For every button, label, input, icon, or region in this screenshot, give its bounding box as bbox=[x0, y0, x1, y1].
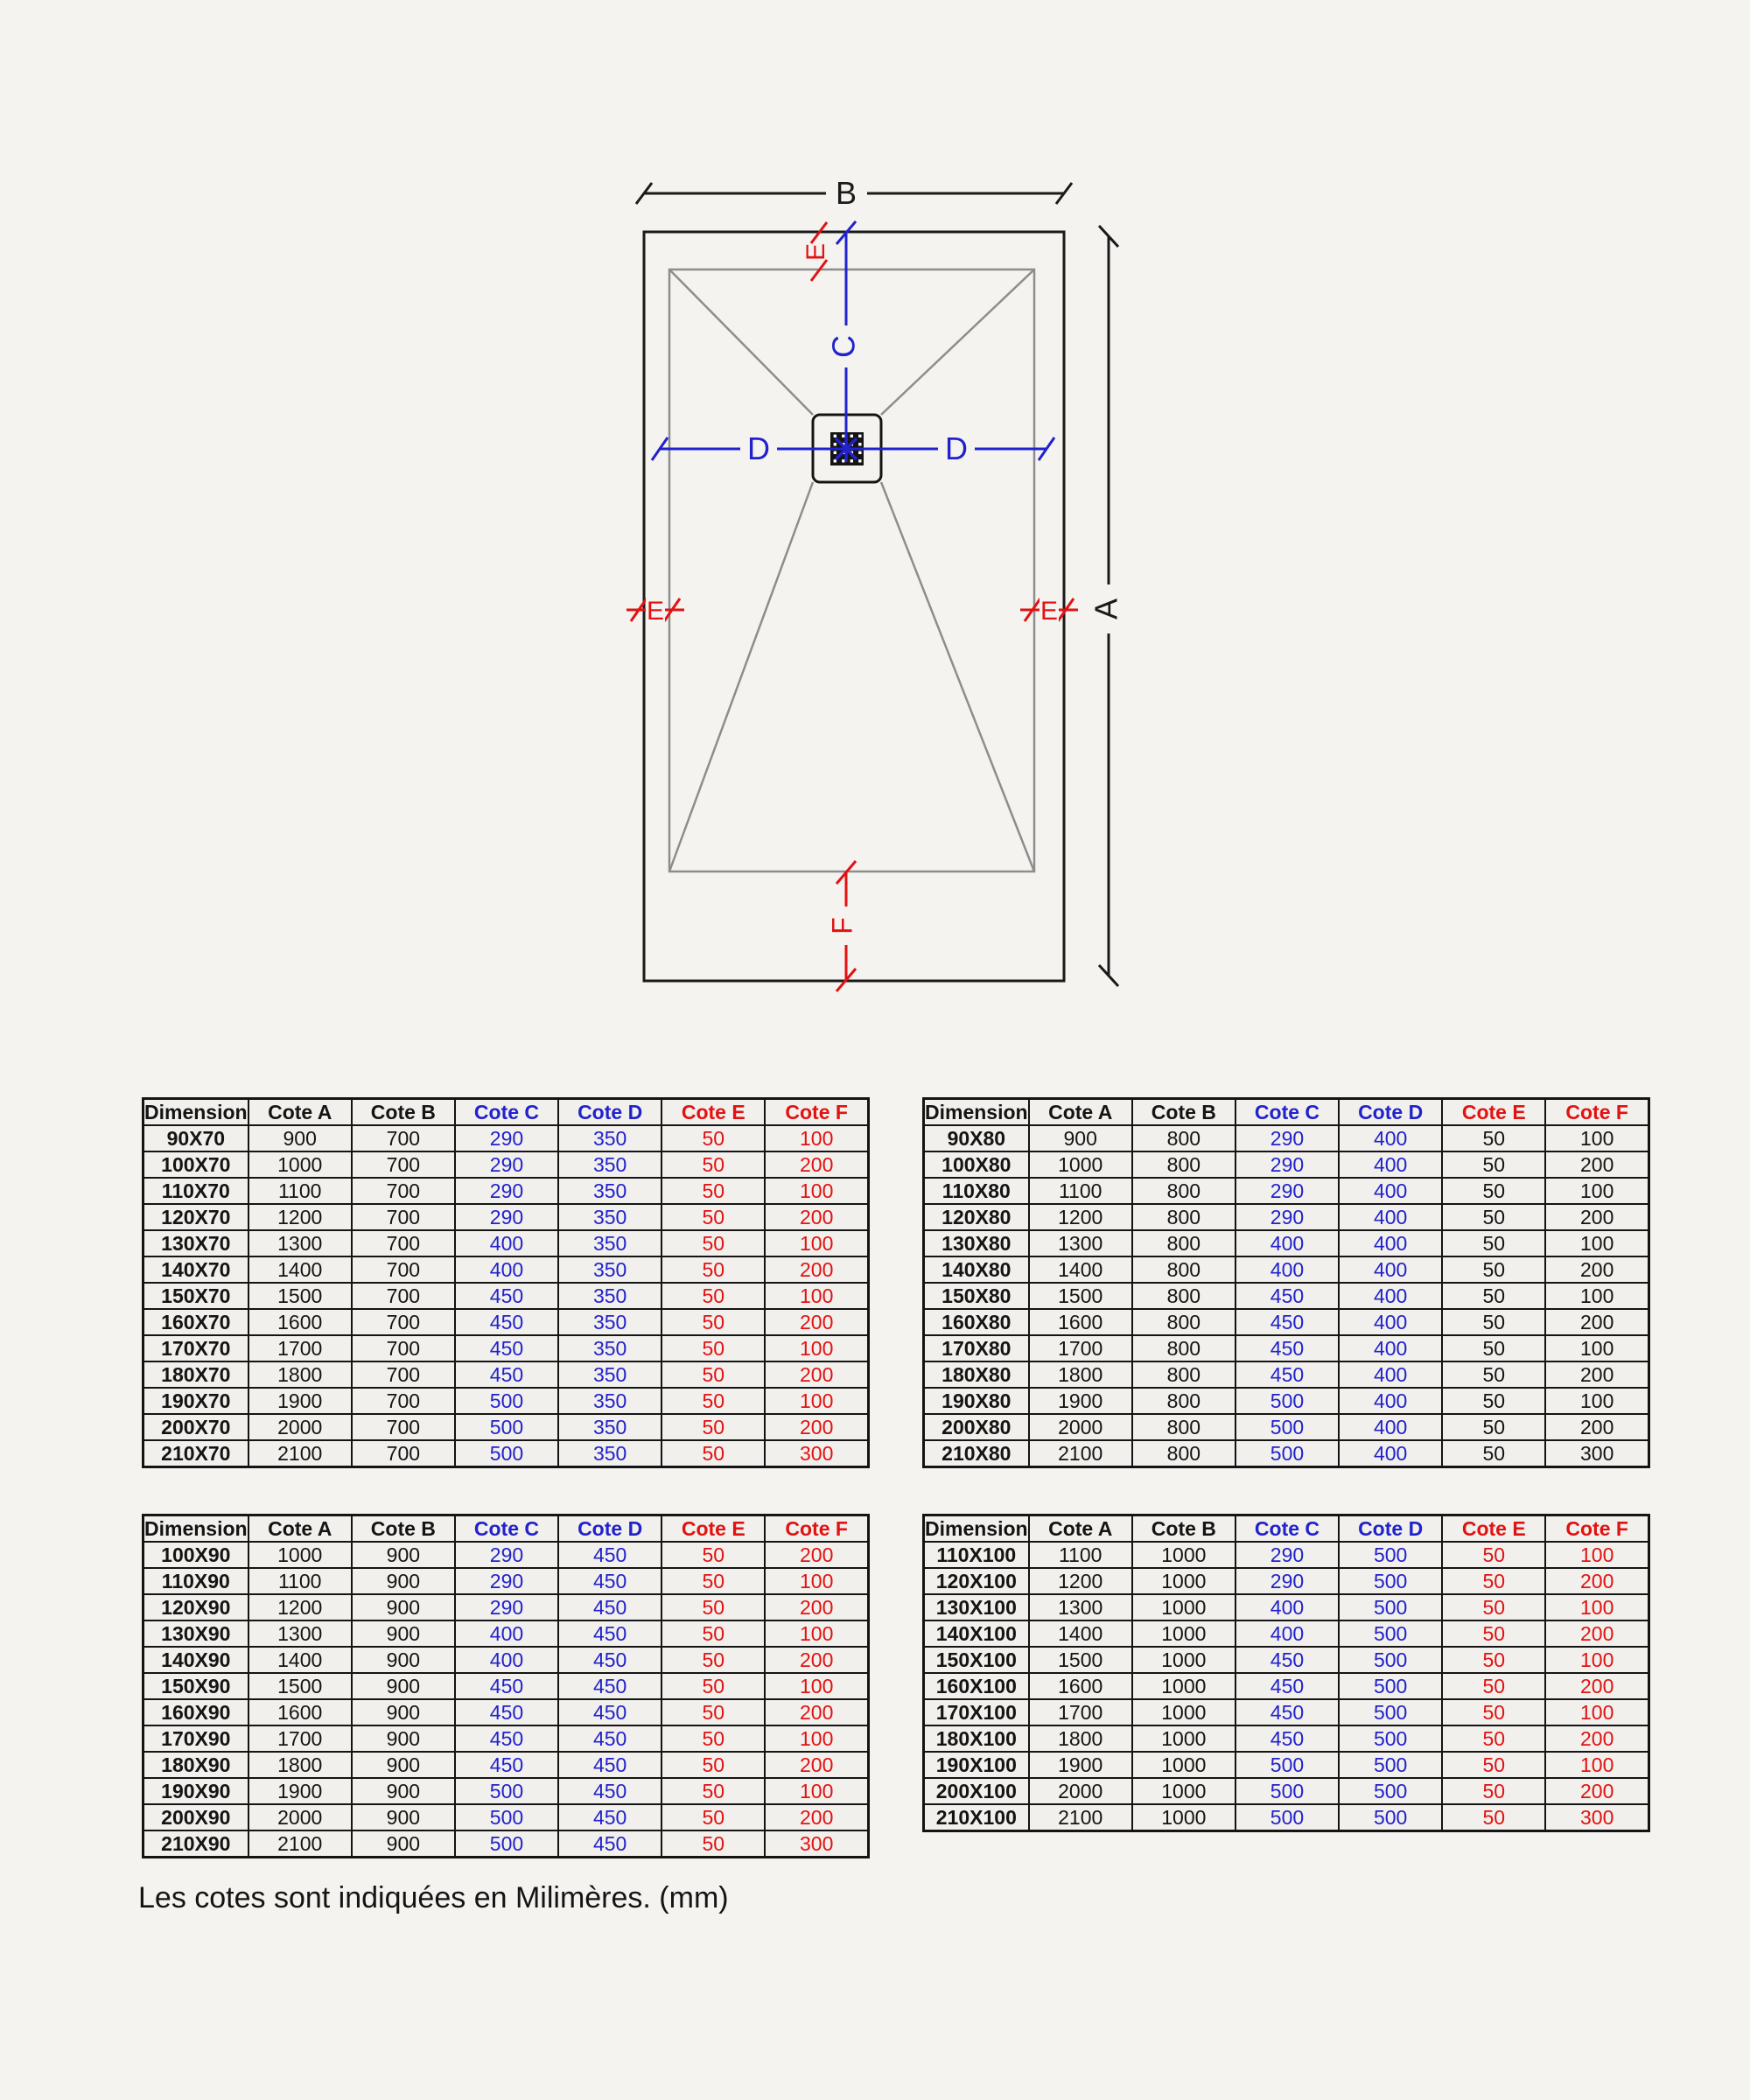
value-cell: 100 bbox=[765, 1388, 868, 1414]
value-cell: 50 bbox=[1442, 1542, 1545, 1568]
value-cell: 350 bbox=[558, 1151, 661, 1178]
value-cell: 500 bbox=[1235, 1778, 1339, 1804]
value-cell: 1900 bbox=[248, 1778, 352, 1804]
dimension-cell: 200X100 bbox=[924, 1778, 1029, 1804]
value-cell: 50 bbox=[1442, 1725, 1545, 1752]
value-cell: 50 bbox=[1442, 1699, 1545, 1725]
header-row: DimensionsCote ACote BCote CCote DCote E… bbox=[143, 1515, 869, 1543]
value-cell: 100 bbox=[765, 1283, 868, 1309]
value-cell: 700 bbox=[352, 1388, 455, 1414]
dim-label-c: C bbox=[826, 335, 862, 358]
table-row: 210X70210070050035050300 bbox=[143, 1440, 869, 1467]
table-row: 110X80110080029040050100 bbox=[924, 1178, 1649, 1204]
table-row: 90X7090070029035050100 bbox=[143, 1125, 869, 1151]
dimension-cell: 140X90 bbox=[143, 1647, 248, 1673]
value-cell: 800 bbox=[1132, 1388, 1235, 1414]
value-cell: 200 bbox=[1545, 1151, 1648, 1178]
value-cell: 350 bbox=[558, 1440, 661, 1467]
value-cell: 50 bbox=[661, 1204, 765, 1230]
value-cell: 700 bbox=[352, 1178, 455, 1204]
value-cell: 400 bbox=[1339, 1414, 1442, 1440]
table-row: 190X1001900100050050050100 bbox=[924, 1752, 1649, 1778]
value-cell: 800 bbox=[1132, 1309, 1235, 1335]
value-cell: 200 bbox=[1545, 1725, 1648, 1752]
dimension-cell: 170X100 bbox=[924, 1699, 1029, 1725]
value-cell: 50 bbox=[661, 1778, 765, 1804]
value-cell: 100 bbox=[765, 1178, 868, 1204]
value-cell: 1000 bbox=[1132, 1542, 1235, 1568]
value-cell: 290 bbox=[1235, 1178, 1339, 1204]
value-cell: 400 bbox=[455, 1620, 558, 1647]
value-cell: 800 bbox=[1132, 1151, 1235, 1178]
column-header: Cote C bbox=[455, 1515, 558, 1543]
column-header: Cote D bbox=[558, 1515, 661, 1543]
value-cell: 1000 bbox=[1132, 1725, 1235, 1752]
value-cell: 1700 bbox=[1029, 1699, 1132, 1725]
dimension-cell: 110X90 bbox=[143, 1568, 248, 1594]
dimension-cell: 160X70 bbox=[143, 1309, 248, 1335]
value-cell: 450 bbox=[1235, 1725, 1339, 1752]
value-cell: 100 bbox=[765, 1673, 868, 1699]
size-table-x100: DimensionsCote ACote BCote CCote DCote E… bbox=[922, 1514, 1650, 1832]
dimension-cell: 90X70 bbox=[143, 1125, 248, 1151]
value-cell: 800 bbox=[1132, 1361, 1235, 1388]
value-cell: 500 bbox=[455, 1778, 558, 1804]
value-cell: 350 bbox=[558, 1125, 661, 1151]
value-cell: 300 bbox=[765, 1830, 868, 1858]
value-cell: 500 bbox=[1339, 1673, 1442, 1699]
shower-tray-diagram: B A C bbox=[0, 0, 1750, 1094]
table-row: 100X90100090029045050200 bbox=[143, 1542, 869, 1568]
table-row: 210X1002100100050050050300 bbox=[924, 1804, 1649, 1831]
value-cell: 50 bbox=[1442, 1673, 1545, 1699]
value-cell: 500 bbox=[1235, 1388, 1339, 1414]
value-cell: 450 bbox=[455, 1725, 558, 1752]
value-cell: 500 bbox=[455, 1804, 558, 1830]
value-cell: 290 bbox=[455, 1178, 558, 1204]
column-header: Dimensions bbox=[143, 1099, 248, 1126]
value-cell: 400 bbox=[1339, 1309, 1442, 1335]
value-cell: 1600 bbox=[248, 1309, 352, 1335]
column-header: Cote A bbox=[248, 1099, 352, 1126]
value-cell: 800 bbox=[1132, 1204, 1235, 1230]
value-cell: 100 bbox=[765, 1725, 868, 1752]
value-cell: 900 bbox=[352, 1725, 455, 1752]
value-cell: 50 bbox=[661, 1594, 765, 1620]
value-cell: 700 bbox=[352, 1283, 455, 1309]
value-cell: 2000 bbox=[1029, 1414, 1132, 1440]
value-cell: 1600 bbox=[1029, 1673, 1132, 1699]
value-cell: 50 bbox=[661, 1647, 765, 1673]
value-cell: 1000 bbox=[248, 1151, 352, 1178]
value-cell: 50 bbox=[661, 1830, 765, 1858]
dimension-cell: 110X100 bbox=[924, 1542, 1029, 1568]
table-row: 110X70110070029035050100 bbox=[143, 1178, 869, 1204]
value-cell: 350 bbox=[558, 1414, 661, 1440]
dimension-cell: 180X90 bbox=[143, 1752, 248, 1778]
column-header: Cote C bbox=[455, 1099, 558, 1126]
value-cell: 2100 bbox=[1029, 1440, 1132, 1467]
dimension-cell: 190X90 bbox=[143, 1778, 248, 1804]
dimension-cell: 100X70 bbox=[143, 1151, 248, 1178]
dim-label-b: B bbox=[836, 175, 857, 211]
value-cell: 1000 bbox=[1132, 1594, 1235, 1620]
value-cell: 900 bbox=[352, 1568, 455, 1594]
value-cell: 400 bbox=[455, 1647, 558, 1673]
value-cell: 50 bbox=[661, 1542, 765, 1568]
table-row: 130X80130080040040050100 bbox=[924, 1230, 1649, 1256]
dimension-cell: 210X100 bbox=[924, 1804, 1029, 1831]
value-cell: 900 bbox=[1029, 1125, 1132, 1151]
dimension-cell: 110X70 bbox=[143, 1178, 248, 1204]
value-cell: 400 bbox=[1235, 1594, 1339, 1620]
value-cell: 100 bbox=[1545, 1594, 1648, 1620]
value-cell: 500 bbox=[1235, 1440, 1339, 1467]
value-cell: 450 bbox=[1235, 1361, 1339, 1388]
value-cell: 290 bbox=[455, 1594, 558, 1620]
value-cell: 900 bbox=[352, 1647, 455, 1673]
table-row: 200X80200080050040050200 bbox=[924, 1414, 1649, 1440]
table-row: 140X70140070040035050200 bbox=[143, 1256, 869, 1283]
value-cell: 50 bbox=[1442, 1335, 1545, 1361]
value-cell: 290 bbox=[455, 1568, 558, 1594]
value-cell: 400 bbox=[1339, 1230, 1442, 1256]
value-cell: 200 bbox=[1545, 1361, 1648, 1388]
value-cell: 100 bbox=[1545, 1178, 1648, 1204]
value-cell: 400 bbox=[455, 1256, 558, 1283]
value-cell: 100 bbox=[1545, 1283, 1648, 1309]
value-cell: 290 bbox=[1235, 1568, 1339, 1594]
dim-label-f: F bbox=[826, 917, 857, 934]
value-cell: 450 bbox=[558, 1804, 661, 1830]
value-cell: 700 bbox=[352, 1335, 455, 1361]
value-cell: 100 bbox=[1545, 1752, 1648, 1778]
value-cell: 50 bbox=[1442, 1752, 1545, 1778]
value-cell: 800 bbox=[1132, 1125, 1235, 1151]
table-row: 160X1001600100045050050200 bbox=[924, 1673, 1649, 1699]
value-cell: 1500 bbox=[248, 1673, 352, 1699]
value-cell: 50 bbox=[661, 1230, 765, 1256]
value-cell: 50 bbox=[661, 1178, 765, 1204]
value-cell: 700 bbox=[352, 1230, 455, 1256]
column-header: Cote F bbox=[1545, 1515, 1648, 1543]
column-header: Cote E bbox=[661, 1099, 765, 1126]
value-cell: 500 bbox=[1339, 1725, 1442, 1752]
value-cell: 400 bbox=[1339, 1440, 1442, 1467]
value-cell: 700 bbox=[352, 1151, 455, 1178]
value-cell: 50 bbox=[1442, 1778, 1545, 1804]
value-cell: 500 bbox=[1339, 1804, 1442, 1831]
table-row: 180X70180070045035050200 bbox=[143, 1361, 869, 1388]
dimension-cell: 210X70 bbox=[143, 1440, 248, 1467]
dimension-cell: 210X90 bbox=[143, 1830, 248, 1858]
dimension-cell: 200X90 bbox=[143, 1804, 248, 1830]
value-cell: 50 bbox=[661, 1440, 765, 1467]
value-cell: 700 bbox=[352, 1204, 455, 1230]
dimension-cell: 170X90 bbox=[143, 1725, 248, 1752]
value-cell: 450 bbox=[558, 1830, 661, 1858]
column-header: Cote F bbox=[765, 1515, 868, 1543]
value-cell: 200 bbox=[765, 1256, 868, 1283]
dimension-cell: 180X80 bbox=[924, 1361, 1029, 1388]
dimension-cell: 120X80 bbox=[924, 1204, 1029, 1230]
value-cell: 350 bbox=[558, 1204, 661, 1230]
value-cell: 100 bbox=[1545, 1125, 1648, 1151]
value-cell: 290 bbox=[1235, 1542, 1339, 1568]
value-cell: 700 bbox=[352, 1440, 455, 1467]
column-header: Dimensions bbox=[924, 1099, 1029, 1126]
value-cell: 290 bbox=[1235, 1151, 1339, 1178]
value-cell: 350 bbox=[558, 1230, 661, 1256]
table-row: 120X70120070029035050200 bbox=[143, 1204, 869, 1230]
value-cell: 500 bbox=[1339, 1778, 1442, 1804]
table-row: 100X70100070029035050200 bbox=[143, 1151, 869, 1178]
units-note: Les cotes sont indiquées en Milimères. (… bbox=[138, 1881, 729, 1915]
value-cell: 50 bbox=[661, 1151, 765, 1178]
value-cell: 500 bbox=[455, 1830, 558, 1858]
value-cell: 450 bbox=[455, 1673, 558, 1699]
dimension-cell: 170X80 bbox=[924, 1335, 1029, 1361]
value-cell: 50 bbox=[661, 1752, 765, 1778]
table-row: 140X90140090040045050200 bbox=[143, 1647, 869, 1673]
value-cell: 800 bbox=[1132, 1335, 1235, 1361]
value-cell: 50 bbox=[1442, 1361, 1545, 1388]
value-cell: 800 bbox=[1132, 1414, 1235, 1440]
table-row: 180X90180090045045050200 bbox=[143, 1752, 869, 1778]
value-cell: 100 bbox=[765, 1778, 868, 1804]
value-cell: 400 bbox=[1339, 1256, 1442, 1283]
value-cell: 1200 bbox=[1029, 1204, 1132, 1230]
value-cell: 200 bbox=[1545, 1778, 1648, 1804]
value-cell: 50 bbox=[1442, 1178, 1545, 1204]
value-cell: 1900 bbox=[1029, 1388, 1132, 1414]
value-cell: 450 bbox=[558, 1752, 661, 1778]
value-cell: 400 bbox=[1339, 1125, 1442, 1151]
value-cell: 100 bbox=[1545, 1335, 1648, 1361]
column-header: Dimensions bbox=[924, 1515, 1029, 1543]
value-cell: 200 bbox=[765, 1309, 868, 1335]
column-header: Cote E bbox=[1442, 1515, 1545, 1543]
value-cell: 450 bbox=[1235, 1283, 1339, 1309]
value-cell: 100 bbox=[1545, 1230, 1648, 1256]
value-cell: 1500 bbox=[1029, 1283, 1132, 1309]
value-cell: 200 bbox=[1545, 1256, 1648, 1283]
value-cell: 200 bbox=[1545, 1204, 1648, 1230]
value-cell: 500 bbox=[1339, 1568, 1442, 1594]
dim-label-d-right: D bbox=[945, 430, 968, 466]
value-cell: 900 bbox=[352, 1830, 455, 1858]
column-header: Cote B bbox=[352, 1515, 455, 1543]
value-cell: 200 bbox=[765, 1647, 868, 1673]
value-cell: 450 bbox=[455, 1335, 558, 1361]
value-cell: 450 bbox=[558, 1673, 661, 1699]
dimension-cell: 100X90 bbox=[143, 1542, 248, 1568]
dimension-cell: 200X80 bbox=[924, 1414, 1029, 1440]
dimension-cell: 160X90 bbox=[143, 1699, 248, 1725]
value-cell: 800 bbox=[1132, 1283, 1235, 1309]
value-cell: 400 bbox=[455, 1230, 558, 1256]
value-cell: 700 bbox=[352, 1414, 455, 1440]
value-cell: 400 bbox=[1339, 1361, 1442, 1388]
value-cell: 900 bbox=[352, 1804, 455, 1830]
value-cell: 500 bbox=[1235, 1414, 1339, 1440]
dimension-cell: 190X80 bbox=[924, 1388, 1029, 1414]
value-cell: 1000 bbox=[1132, 1752, 1235, 1778]
value-cell: 1400 bbox=[248, 1647, 352, 1673]
value-cell: 800 bbox=[1132, 1440, 1235, 1467]
dimension-cell: 120X90 bbox=[143, 1594, 248, 1620]
value-cell: 450 bbox=[1235, 1309, 1339, 1335]
table-row: 180X80180080045040050200 bbox=[924, 1361, 1649, 1388]
value-cell: 500 bbox=[1235, 1804, 1339, 1831]
table-row: 150X90150090045045050100 bbox=[143, 1673, 869, 1699]
dimension-cell: 140X80 bbox=[924, 1256, 1029, 1283]
value-cell: 700 bbox=[352, 1361, 455, 1388]
table-row: 160X70160070045035050200 bbox=[143, 1309, 869, 1335]
table-row: 190X90190090050045050100 bbox=[143, 1778, 869, 1804]
value-cell: 50 bbox=[1442, 1256, 1545, 1283]
dimension-cell: 190X100 bbox=[924, 1752, 1029, 1778]
column-header: Cote D bbox=[558, 1099, 661, 1126]
value-cell: 200 bbox=[765, 1151, 868, 1178]
value-cell: 400 bbox=[1235, 1230, 1339, 1256]
value-cell: 400 bbox=[1339, 1204, 1442, 1230]
column-header: Cote A bbox=[1029, 1099, 1132, 1126]
table-row: 130X1001300100040050050100 bbox=[924, 1594, 1649, 1620]
value-cell: 350 bbox=[558, 1335, 661, 1361]
value-cell: 450 bbox=[1235, 1699, 1339, 1725]
value-cell: 2000 bbox=[1029, 1778, 1132, 1804]
table-row: 200X90200090050045050200 bbox=[143, 1804, 869, 1830]
table-row: 170X80170080045040050100 bbox=[924, 1335, 1649, 1361]
value-cell: 450 bbox=[558, 1542, 661, 1568]
column-header: Cote E bbox=[661, 1515, 765, 1543]
value-cell: 1200 bbox=[248, 1204, 352, 1230]
dimension-cell: 150X100 bbox=[924, 1647, 1029, 1673]
value-cell: 50 bbox=[1442, 1804, 1545, 1831]
value-cell: 100 bbox=[1545, 1699, 1648, 1725]
table-row: 120X80120080029040050200 bbox=[924, 1204, 1649, 1230]
value-cell: 1100 bbox=[248, 1178, 352, 1204]
value-cell: 290 bbox=[455, 1151, 558, 1178]
table-row: 130X70130070040035050100 bbox=[143, 1230, 869, 1256]
table-row: 160X80160080045040050200 bbox=[924, 1309, 1649, 1335]
value-cell: 1100 bbox=[248, 1568, 352, 1594]
value-cell: 1700 bbox=[248, 1725, 352, 1752]
value-cell: 1800 bbox=[1029, 1361, 1132, 1388]
value-cell: 1400 bbox=[1029, 1620, 1132, 1647]
value-cell: 1800 bbox=[1029, 1725, 1132, 1752]
value-cell: 800 bbox=[1132, 1256, 1235, 1283]
value-cell: 2100 bbox=[248, 1440, 352, 1467]
value-cell: 50 bbox=[1442, 1309, 1545, 1335]
value-cell: 1200 bbox=[1029, 1568, 1132, 1594]
value-cell: 50 bbox=[1442, 1594, 1545, 1620]
value-cell: 1000 bbox=[248, 1542, 352, 1568]
value-cell: 2000 bbox=[248, 1414, 352, 1440]
value-cell: 50 bbox=[661, 1414, 765, 1440]
value-cell: 350 bbox=[558, 1388, 661, 1414]
size-table-x70: DimensionsCote ACote BCote CCote DCote E… bbox=[142, 1097, 870, 1468]
value-cell: 450 bbox=[455, 1752, 558, 1778]
value-cell: 50 bbox=[1442, 1388, 1545, 1414]
table-row: 170X70170070045035050100 bbox=[143, 1335, 869, 1361]
size-table-x80: DimensionsCote ACote BCote CCote DCote E… bbox=[922, 1097, 1650, 1468]
table-row: 150X70150070045035050100 bbox=[143, 1283, 869, 1309]
value-cell: 200 bbox=[765, 1699, 868, 1725]
dimension-cell: 140X100 bbox=[924, 1620, 1029, 1647]
header-row: DimensionsCote ACote BCote CCote DCote E… bbox=[924, 1099, 1649, 1126]
value-cell: 100 bbox=[1545, 1542, 1648, 1568]
value-cell: 400 bbox=[1339, 1283, 1442, 1309]
table-row: 140X1001400100040050050200 bbox=[924, 1620, 1649, 1647]
value-cell: 300 bbox=[1545, 1804, 1648, 1831]
value-cell: 50 bbox=[661, 1125, 765, 1151]
column-header: Cote B bbox=[1132, 1099, 1235, 1126]
value-cell: 900 bbox=[352, 1699, 455, 1725]
value-cell: 700 bbox=[352, 1256, 455, 1283]
value-cell: 200 bbox=[1545, 1309, 1648, 1335]
value-cell: 1000 bbox=[1132, 1804, 1235, 1831]
value-cell: 200 bbox=[765, 1204, 868, 1230]
value-cell: 2100 bbox=[1029, 1804, 1132, 1831]
table-row: 100X80100080029040050200 bbox=[924, 1151, 1649, 1178]
table-row: 120X90120090029045050200 bbox=[143, 1594, 869, 1620]
value-cell: 350 bbox=[558, 1283, 661, 1309]
value-cell: 1000 bbox=[1132, 1778, 1235, 1804]
value-cell: 290 bbox=[1235, 1204, 1339, 1230]
value-cell: 700 bbox=[352, 1125, 455, 1151]
value-cell: 1200 bbox=[248, 1594, 352, 1620]
table-row: 160X90160090045045050200 bbox=[143, 1699, 869, 1725]
value-cell: 450 bbox=[455, 1361, 558, 1388]
value-cell: 50 bbox=[1442, 1440, 1545, 1467]
value-cell: 450 bbox=[558, 1594, 661, 1620]
value-cell: 1300 bbox=[248, 1230, 352, 1256]
value-cell: 200 bbox=[1545, 1673, 1648, 1699]
value-cell: 200 bbox=[1545, 1620, 1648, 1647]
table-row: 170X1001700100045050050100 bbox=[924, 1699, 1649, 1725]
value-cell: 1800 bbox=[248, 1361, 352, 1388]
value-cell: 800 bbox=[1132, 1178, 1235, 1204]
dimension-cell: 160X80 bbox=[924, 1309, 1029, 1335]
value-cell: 450 bbox=[455, 1309, 558, 1335]
table-row: 190X80190080050040050100 bbox=[924, 1388, 1649, 1414]
value-cell: 2000 bbox=[248, 1804, 352, 1830]
value-cell: 50 bbox=[1442, 1151, 1545, 1178]
value-cell: 450 bbox=[558, 1778, 661, 1804]
value-cell: 50 bbox=[1442, 1647, 1545, 1673]
value-cell: 100 bbox=[765, 1620, 868, 1647]
table-row: 170X90170090045045050100 bbox=[143, 1725, 869, 1752]
value-cell: 50 bbox=[661, 1673, 765, 1699]
table-row: 140X80140080040040050200 bbox=[924, 1256, 1649, 1283]
value-cell: 100 bbox=[765, 1335, 868, 1361]
value-cell: 900 bbox=[352, 1542, 455, 1568]
value-cell: 50 bbox=[661, 1620, 765, 1647]
dimension-cell: 150X80 bbox=[924, 1283, 1029, 1309]
page: B A C bbox=[0, 0, 1750, 2100]
value-cell: 2100 bbox=[248, 1830, 352, 1858]
value-cell: 1000 bbox=[1132, 1620, 1235, 1647]
value-cell: 1600 bbox=[1029, 1309, 1132, 1335]
value-cell: 450 bbox=[1235, 1673, 1339, 1699]
value-cell: 800 bbox=[1132, 1230, 1235, 1256]
table-row: 210X80210080050040050300 bbox=[924, 1440, 1649, 1467]
value-cell: 1300 bbox=[1029, 1230, 1132, 1256]
value-cell: 450 bbox=[558, 1568, 661, 1594]
value-cell: 200 bbox=[765, 1361, 868, 1388]
